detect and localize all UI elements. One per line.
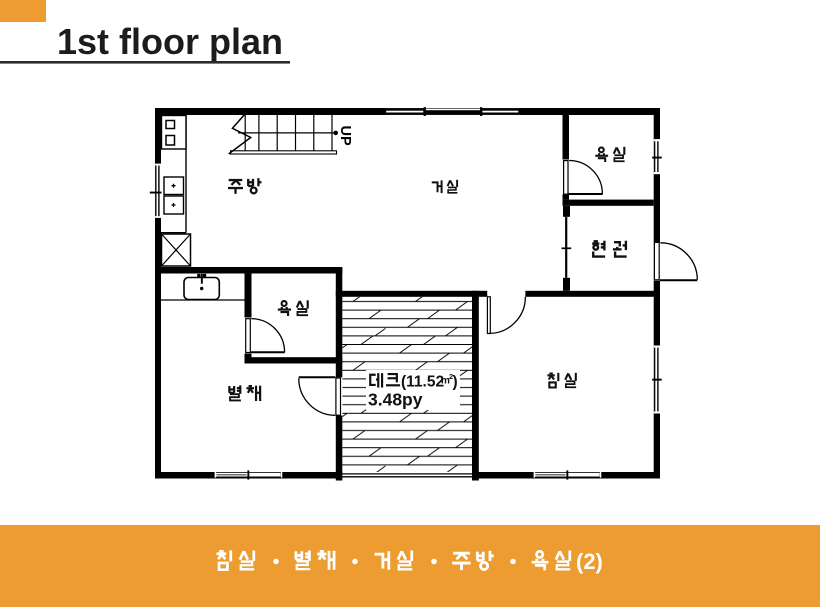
svg-text:(2): (2) [576, 549, 603, 574]
svg-text:(11.52: (11.52 [401, 374, 444, 391]
svg-text:3.48py: 3.48py [368, 390, 423, 410]
svg-text:): ) [453, 374, 458, 391]
svg-text:UP: UP [337, 126, 353, 146]
svg-text:1st floor plan: 1st floor plan [57, 21, 283, 62]
